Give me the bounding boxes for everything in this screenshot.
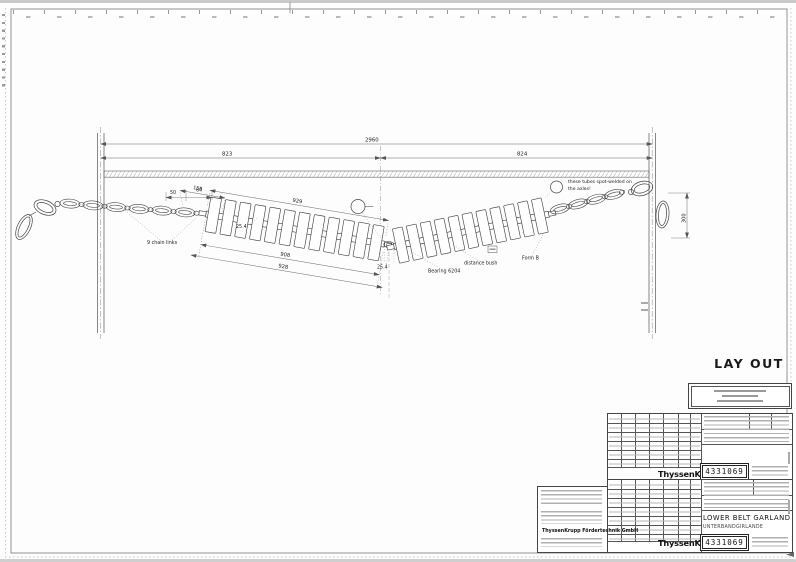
dim-right-span: 824 [517,152,528,158]
dim-roller-bottom-a: 908 [280,251,291,259]
left-hook [12,197,60,242]
roller-set-right [384,196,560,265]
microtext [541,511,602,524]
microtext [541,538,602,547]
note-weld-line2: the axles! [568,186,591,192]
microtext [752,466,788,477]
dim-roller-top-short: 150 [193,185,203,192]
label-chain-links: 9 chain links [147,240,178,246]
info-box-inner [691,386,790,407]
drawing-sheet: 2960 823 824 [0,0,796,562]
copyright-box: ThyssenKrupp Fördertechnik GmbH [537,486,608,553]
microtext [704,416,789,442]
drawing-number: 4331069 [702,536,747,549]
belt-section-band [104,171,649,177]
dim-overall: 2960 [365,138,379,144]
drawing-number-box: 4331069 [700,463,749,480]
microtext [704,482,789,508]
note-weld-line1: these tubes spot-welded on [568,179,632,185]
microtext [752,537,788,548]
dim-chain-short-a: 50 [170,190,176,196]
dim-roller-bottom-b: 928 [278,263,289,271]
drawing-number-box: 4331069 [700,534,749,551]
label-distance-bush: distance bush [464,261,497,267]
microtext [714,390,766,392]
label-bearing: Bearing 6204 [428,269,460,275]
dim-gap-center: 25.4 [377,265,388,271]
microtext [541,490,602,507]
dim-ring-height: 300 [682,213,688,223]
microtext [722,395,758,397]
edge-mark [788,452,790,464]
edge-mark [788,500,790,514]
drawing-title-en: LOWER BELT GARLAND [703,514,790,522]
microtext [717,400,763,402]
dim-gap-left: 25.4 [236,224,247,230]
title-block-lower: LOWER BELT GARLAND UNTERBANDGIRLANDE Thy… [607,479,793,553]
right-hook: 300 [628,179,690,238]
left-chain [60,198,200,217]
company-name: ThyssenKrupp Fördertechnik GmbH [542,529,638,534]
info-box [688,383,792,409]
title-block-upper: ThyssenKrupp 4331069 [607,413,793,480]
microtext-grid [609,415,700,466]
drawing-number: 4331069 [702,465,747,478]
drawing-title-de: UNTERBANDGIRLANDE [703,525,763,530]
dim-left-span: 823 [222,152,232,158]
dim-roller-top-long: 929 [292,198,303,206]
roller-set-left: 929 908 928 [191,183,397,290]
label-form: Form B [522,256,539,262]
layout-label: LAY OUT [703,356,795,371]
